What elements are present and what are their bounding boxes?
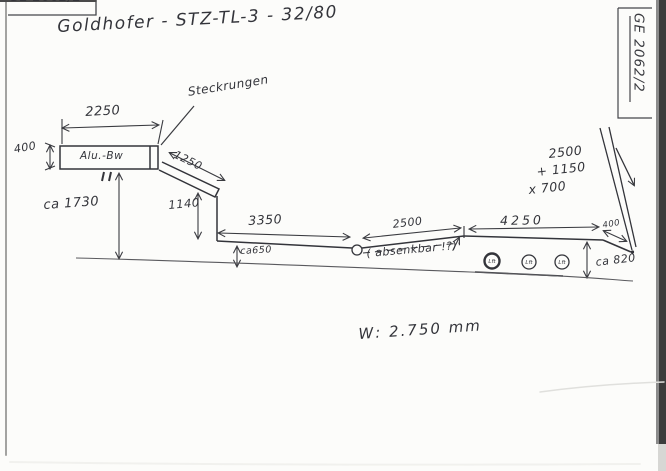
- scan-edges: [0, 0, 666, 471]
- dim-2500-line: [364, 228, 460, 238]
- dim-3350-line: [219, 233, 349, 237]
- scanned-sketch-page: Lft Lft Lft GE 2062/2 Goldhofer - STZ-TL…: [0, 0, 666, 471]
- wheel-2-label: Lft: [525, 260, 533, 266]
- dim-400-tail-line: [604, 231, 626, 241]
- dim-400-lines: [45, 143, 55, 170]
- stamp-top-right-text: GE 2062/2: [631, 13, 645, 93]
- dim-2500-label: 2500: [392, 215, 423, 230]
- gooseneck-body-label: Alu.-Bw: [80, 151, 123, 162]
- ground-line: [76, 258, 633, 281]
- dim-1140-label: 1140: [168, 197, 200, 211]
- dim-2250-lines: [62, 119, 163, 144]
- wheel-1-label: Lft: [488, 259, 496, 265]
- dim-4250-label: 4250: [500, 214, 544, 227]
- wheel-3-label: Lft: [558, 260, 566, 266]
- sketch-linework: Lft Lft Lft: [0, 0, 666, 471]
- dim-ca650-label: ca650: [240, 245, 272, 256]
- dim-ca1730-label: ca 1730: [43, 195, 100, 212]
- stamp-top-left-text: GE 2062/2: [9, 0, 82, 4]
- steckrungen-leader-line: [161, 106, 194, 145]
- dim-3350-label: 3350: [248, 213, 282, 227]
- dim-2250-label: 2250: [85, 104, 121, 119]
